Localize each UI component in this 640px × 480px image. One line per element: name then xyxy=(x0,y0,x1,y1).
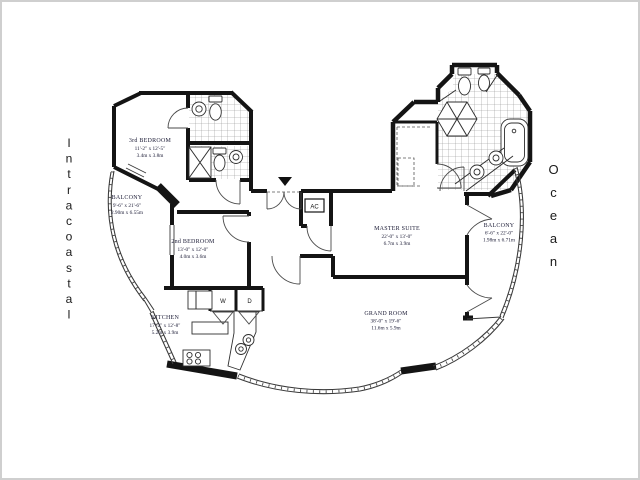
svg-text:6'-6" x 22'-0": 6'-6" x 22'-0" xyxy=(485,231,513,237)
svg-text:2.90m x 6.55m: 2.90m x 6.55m xyxy=(111,210,144,216)
dryer-label: D xyxy=(247,299,252,305)
ac-label: AC xyxy=(310,205,319,211)
bedroom2-door xyxy=(223,216,249,242)
refrigerator-counter xyxy=(188,291,212,309)
image-border xyxy=(1,1,639,479)
svg-text:38'-0" x 19'-6": 38'-0" x 19'-6" xyxy=(371,319,402,325)
bath1-sink xyxy=(192,102,206,116)
svg-text:3.4m x 3.8m: 3.4m x 3.8m xyxy=(137,153,165,159)
bath2-door xyxy=(216,180,240,204)
room-label-balcony-left: BALCONY 9'-6" x 21'-6" 2.90m x 6.55m xyxy=(111,195,144,216)
svg-text:GRAND ROOM: GRAND ROOM xyxy=(364,311,408,317)
svg-text:9'-6" x 21'-6": 9'-6" x 21'-6" xyxy=(113,203,141,209)
svg-text:BALCONY: BALCONY xyxy=(112,195,143,201)
svg-text:3rd BEDROOM: 3rd BEDROOM xyxy=(129,138,172,144)
water-closet-bidet xyxy=(478,68,490,91)
master-suite-double-door xyxy=(272,256,300,284)
room-label-bedroom2: 2nd BEDROOM 13'-0" x 12'-0" 4.0m x 3.6m xyxy=(171,239,215,260)
svg-text:13'-0" x 12'-0": 13'-0" x 12'-0" xyxy=(178,247,209,253)
room-label-grand-room: GRAND ROOM 38'-0" x 19'-6" 11.6m x 5.9m xyxy=(364,311,408,332)
room-label-kitchen: KITCHEN 17'-2" x 12'-8" 5.2m x 3.9m xyxy=(150,315,181,336)
svg-text:KITCHEN: KITCHEN xyxy=(151,315,179,321)
master-bathtub xyxy=(501,119,528,166)
svg-text:6.7m x 3.9m: 6.7m x 3.9m xyxy=(384,241,412,247)
svg-text:11'-2" x 12'-5": 11'-2" x 12'-5" xyxy=(135,146,166,152)
left-balcony-railing-ticks xyxy=(110,172,145,300)
washer-label: W xyxy=(220,299,226,305)
floor-plan-drawing: W D AC 3rd BEDROOM 11'-2" x 12'-5" 3.4m … xyxy=(0,0,640,480)
bath2-shower xyxy=(189,147,211,178)
grand-room-window-wall-right xyxy=(433,316,504,370)
svg-text:BALCONY: BALCONY xyxy=(484,223,515,229)
svg-text:2nd BEDROOM: 2nd BEDROOM xyxy=(171,239,215,245)
kitchen-fixtures: W D xyxy=(183,291,263,370)
ac-closet: AC xyxy=(305,199,324,212)
balcony-corner-wall xyxy=(158,186,177,205)
bath2-toilet xyxy=(213,148,226,171)
svg-text:11.6m x 5.9m: 11.6m x 5.9m xyxy=(371,326,401,332)
kitchen-peninsula-counter xyxy=(228,311,256,370)
bath1-toilet xyxy=(209,96,222,120)
bath1-door xyxy=(168,108,188,128)
svg-text:22'-0" x 13'-0": 22'-0" x 13'-0" xyxy=(382,234,413,240)
svg-text:17'-2" x 12'-8": 17'-2" x 12'-8" xyxy=(150,323,181,329)
grand-balcony-door xyxy=(467,285,492,312)
bath2-sink xyxy=(230,151,243,164)
entry-arrow-marker xyxy=(278,177,292,186)
svg-text:MASTER SUITE: MASTER SUITE xyxy=(374,226,420,232)
ac-closet-door xyxy=(307,226,331,251)
stove xyxy=(183,350,210,366)
entry-double-doors xyxy=(267,192,301,209)
room-label-balcony-right: BALCONY 6'-6" x 22'-0" 1.98m x 6.71m xyxy=(483,223,516,244)
svg-text:5.2m x 3.9m: 5.2m x 3.9m xyxy=(152,330,180,336)
walkin-closet-shelving xyxy=(397,127,432,186)
room-label-master-suite: MASTER SUITE 22'-0" x 13'-0" 6.7m x 3.9m xyxy=(374,226,420,247)
floor-plan-page: Intracoastal Ocean xyxy=(0,0,640,480)
grand-room-window-wall-left xyxy=(237,370,402,394)
svg-text:4.0m x 3.6m: 4.0m x 3.6m xyxy=(180,254,208,260)
bedroom2-walls xyxy=(164,204,263,288)
kitchen-walls xyxy=(210,288,263,311)
room-label-bedroom3: 3rd BEDROOM 11'-2" x 12'-5" 3.4m x 3.8m xyxy=(129,138,172,159)
water-closet-toilet xyxy=(458,68,471,95)
grand-room-window-pier xyxy=(401,366,436,371)
svg-text:1.98m x 6.71m: 1.98m x 6.71m xyxy=(483,238,516,244)
